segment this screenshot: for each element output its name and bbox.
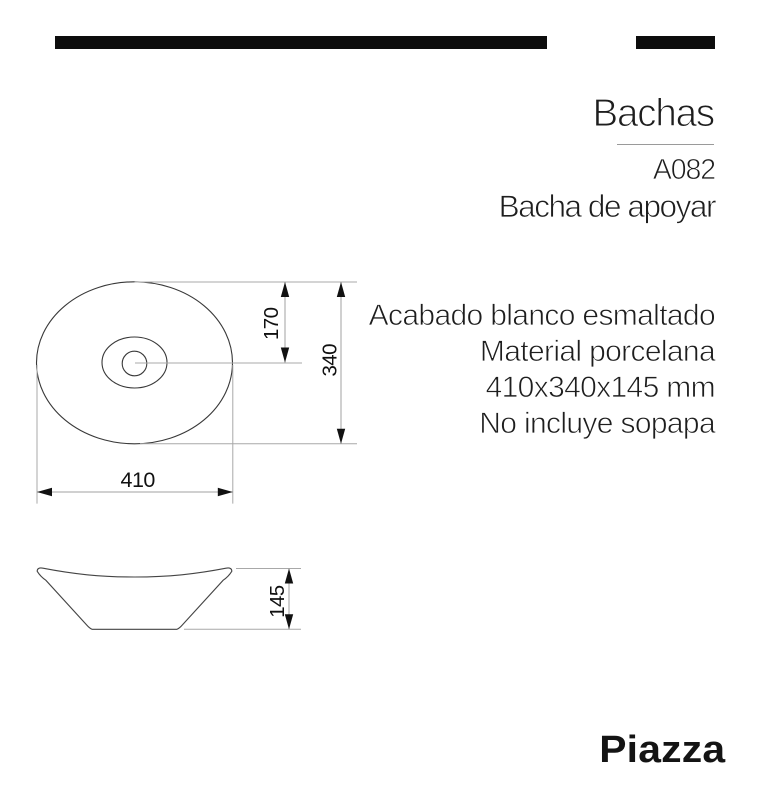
svg-text:410: 410: [121, 468, 156, 492]
svg-text:340: 340: [319, 344, 342, 377]
svg-text:145: 145: [266, 585, 289, 618]
svg-text:170: 170: [260, 307, 283, 340]
